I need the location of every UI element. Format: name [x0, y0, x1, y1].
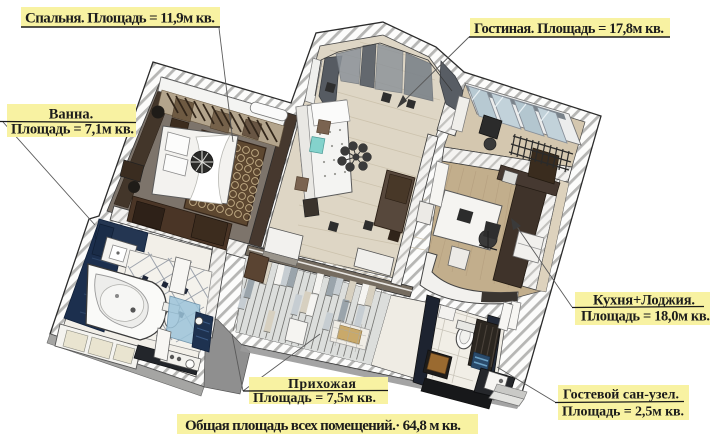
svg-text:Площадь = 7,5м кв.: Площадь = 7,5м кв. [253, 391, 376, 406]
svg-text:Площадь = 7,1м кв.: Площадь = 7,1м кв. [11, 122, 134, 138]
svg-text:Площадь = 2,5м кв.: Площадь = 2,5м кв. [562, 405, 684, 420]
svg-text:Гостиная. Площадь = 17,8м кв.: Гостиная. Площадь = 17,8м кв. [474, 21, 664, 37]
svg-text:Кухня+Лоджия.: Кухня+Лоджия. [593, 293, 695, 309]
svg-text:Ванна.: Ванна. [49, 107, 94, 123]
svg-text:Спальня. Площадь = 11,9м кв.: Спальня. Площадь = 11,9м кв. [25, 11, 215, 27]
svg-text:Гостевой сан-узел.: Гостевой сан-узел. [563, 388, 679, 403]
svg-text:Площадь = 18,0м кв.: Площадь = 18,0м кв. [581, 309, 710, 325]
svg-text:Прихожая: Прихожая [288, 377, 356, 392]
svg-text:Общая площадь всех помещений.·: Общая площадь всех помещений.· 64,8 м кв… [185, 418, 461, 434]
